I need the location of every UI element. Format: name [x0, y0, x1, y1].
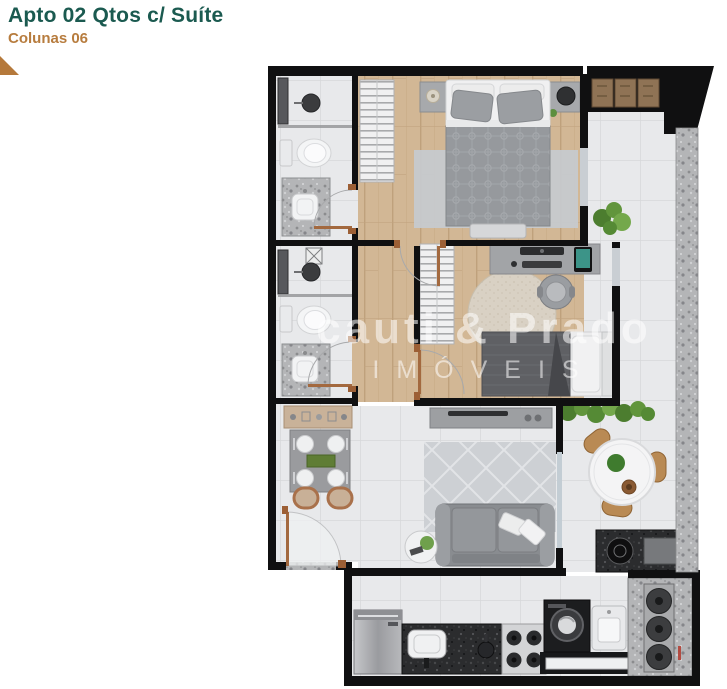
shower-drain-icon — [302, 94, 320, 112]
buffet-sideboard — [284, 406, 352, 428]
plant-icon — [607, 454, 625, 472]
chair — [328, 488, 352, 508]
plate — [328, 470, 345, 487]
kitchen-window — [540, 652, 634, 674]
side-table — [405, 531, 437, 563]
keyboard-icon — [522, 261, 562, 268]
shower-drain-icon — [302, 263, 320, 281]
tv-console — [430, 408, 552, 428]
counter-tray — [644, 538, 680, 564]
glass-door — [557, 452, 562, 550]
pillow — [572, 336, 600, 392]
wall-left — [268, 66, 276, 570]
red-label — [678, 646, 681, 660]
plate — [297, 470, 314, 487]
shower-partition — [278, 125, 354, 128]
door-leaf — [314, 226, 352, 229]
round-table — [589, 439, 655, 505]
page-subtitle: Colunas 06 — [8, 30, 223, 47]
granite-ledge — [676, 128, 698, 572]
nightstand-left — [420, 82, 446, 112]
soundbar-icon — [448, 411, 508, 416]
page-header: Apto 02 Qtos c/ Suíte Colunas 06 — [8, 4, 223, 47]
shower-partition — [278, 294, 354, 297]
wall-left-lower — [344, 562, 352, 676]
plate — [328, 436, 345, 453]
wall-kitchen-top — [344, 568, 566, 576]
vanity-counter — [282, 344, 330, 396]
bed-bench — [470, 224, 526, 238]
plate — [297, 436, 314, 453]
dining-area — [284, 406, 352, 508]
window-master — [580, 148, 588, 206]
entry-hall-mats — [592, 79, 659, 107]
kitchen-counter — [402, 624, 502, 674]
faucet-knob — [478, 642, 494, 658]
toilet — [280, 306, 331, 334]
floor-plan-page: Apto 02 Qtos c/ Suíte Colunas 06 — [0, 0, 727, 689]
door-leaf — [437, 246, 440, 286]
desk — [490, 244, 600, 274]
laundry-sink — [592, 606, 626, 650]
door-leaf — [418, 350, 421, 394]
pillow — [497, 90, 544, 124]
nightstand-right — [549, 82, 580, 117]
door-leaf — [308, 384, 352, 387]
chair — [294, 488, 318, 508]
sofa — [436, 504, 554, 566]
window-bedroom2 — [612, 248, 620, 286]
table-runner — [307, 455, 335, 467]
door-leaf — [286, 512, 289, 566]
wall-bottom — [344, 676, 700, 686]
floor-plan-drawing — [0, 0, 727, 689]
counter-sink — [607, 538, 633, 564]
dishwasher — [354, 610, 402, 674]
double-bed — [446, 80, 550, 226]
page-title: Apto 02 Qtos c/ Suíte — [8, 4, 223, 28]
ac-condenser-area — [628, 578, 692, 676]
single-bed — [482, 332, 614, 396]
shower-glass-screen — [278, 78, 288, 124]
dining-table — [290, 430, 350, 492]
wall-right-lower — [692, 570, 700, 684]
shower-glass-screen — [278, 250, 288, 294]
mouse-icon — [511, 261, 517, 267]
faucet-icon — [424, 658, 429, 668]
cooktop — [502, 624, 546, 674]
wall-top — [268, 66, 588, 76]
table-lamp-icon — [557, 87, 575, 105]
pillow — [450, 90, 493, 123]
washing-machine — [544, 600, 590, 652]
toilet — [280, 139, 331, 167]
